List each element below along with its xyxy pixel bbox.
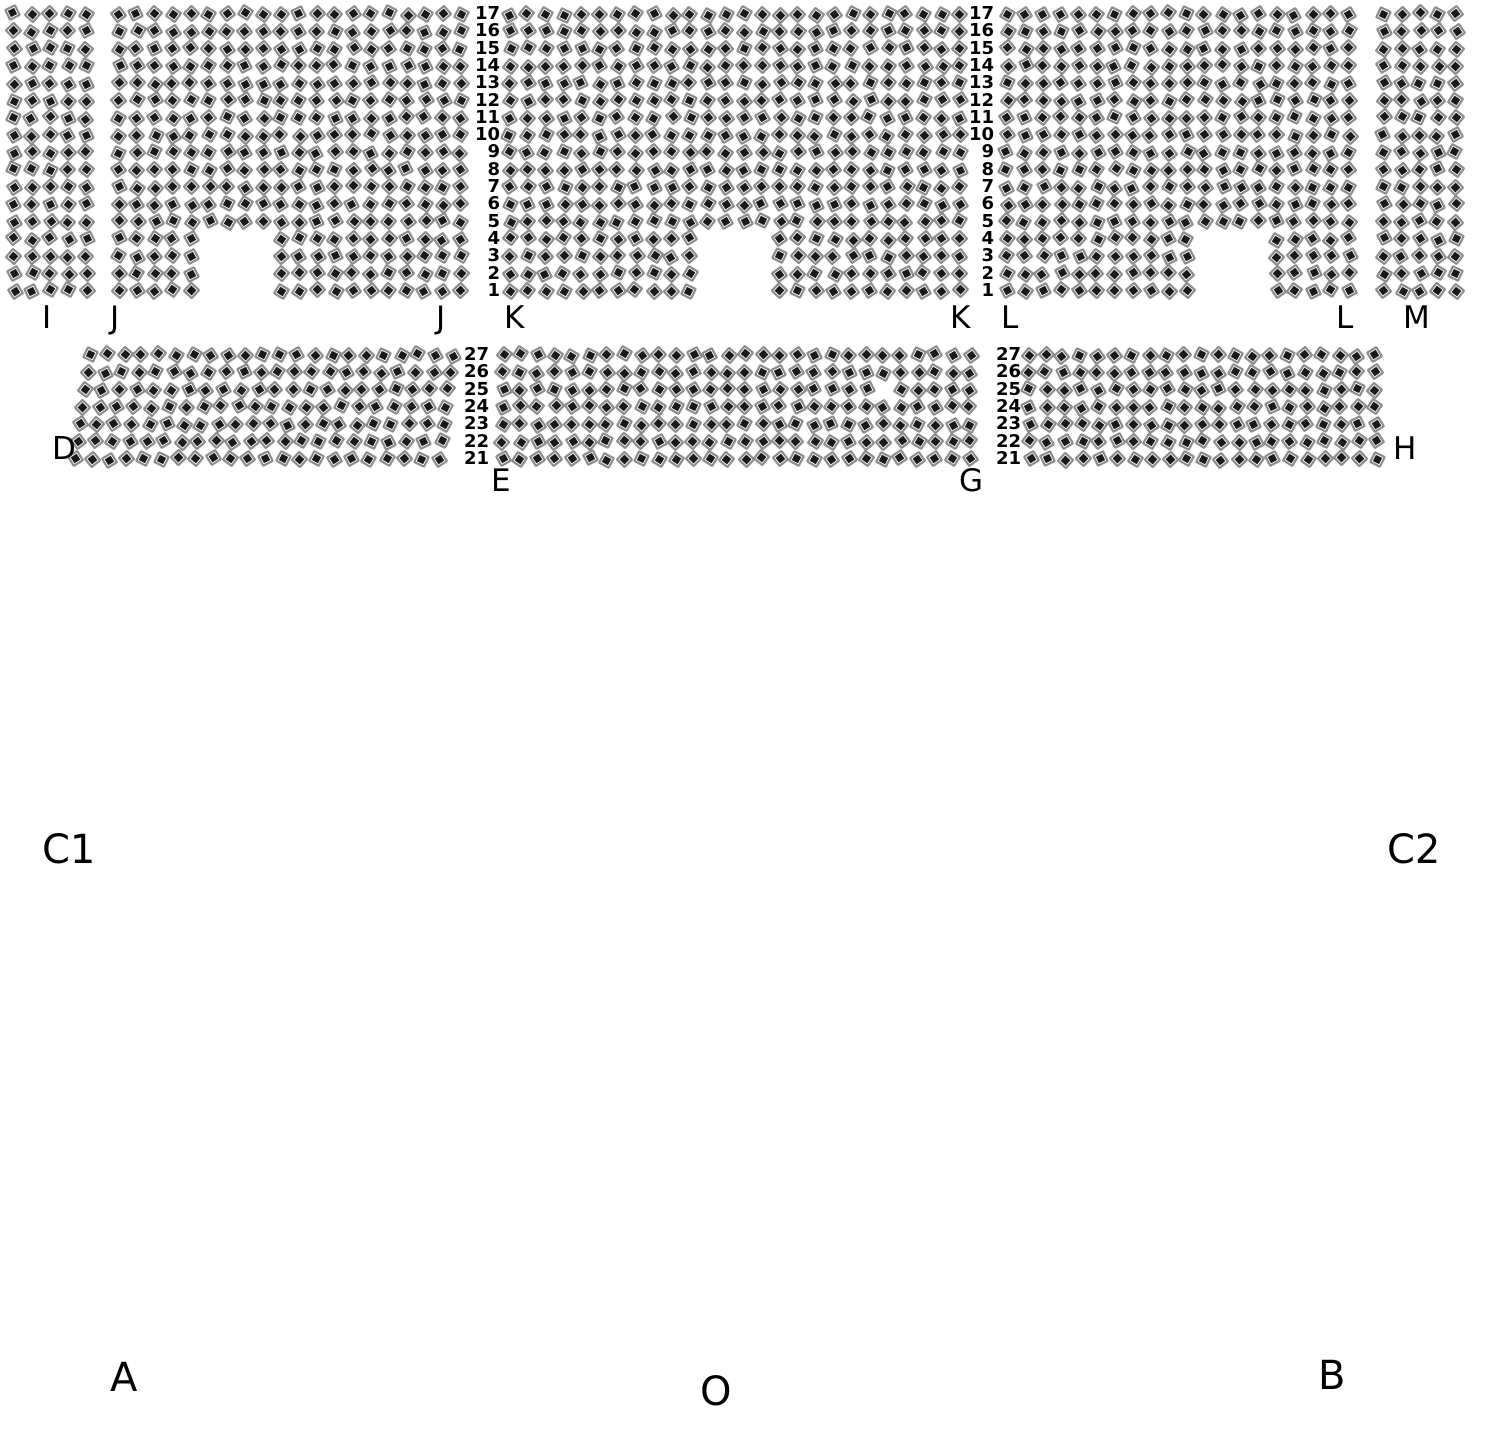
seat[interactable] <box>344 143 362 161</box>
seat[interactable] <box>42 144 60 162</box>
seat[interactable] <box>1053 264 1071 282</box>
seat[interactable] <box>806 416 824 434</box>
seat[interactable] <box>512 433 530 451</box>
seat[interactable] <box>1087 264 1105 282</box>
seat[interactable] <box>86 431 104 449</box>
seat[interactable] <box>591 109 608 126</box>
seat[interactable] <box>646 162 664 180</box>
seat[interactable] <box>651 433 669 451</box>
seat[interactable] <box>536 74 553 91</box>
seat[interactable] <box>361 212 379 230</box>
seat[interactable] <box>519 265 537 283</box>
seat[interactable] <box>614 397 632 415</box>
seat[interactable] <box>893 432 911 450</box>
seat[interactable] <box>1107 398 1125 416</box>
seat[interactable] <box>826 196 843 213</box>
seat[interactable] <box>752 127 770 145</box>
seat[interactable] <box>538 21 556 39</box>
seat[interactable] <box>1376 108 1394 126</box>
seat[interactable] <box>4 4 21 21</box>
seat[interactable] <box>518 212 536 230</box>
seat[interactable] <box>860 126 878 144</box>
seat[interactable] <box>574 246 591 263</box>
seat[interactable] <box>1051 108 1069 126</box>
seat[interactable] <box>626 178 643 195</box>
seat[interactable] <box>129 91 147 109</box>
seat[interactable] <box>201 212 218 229</box>
seat[interactable] <box>1376 195 1394 213</box>
seat[interactable] <box>308 4 326 22</box>
seat[interactable] <box>1142 281 1160 299</box>
seat[interactable] <box>717 6 735 24</box>
seat[interactable] <box>1177 213 1195 231</box>
seat[interactable] <box>60 231 78 249</box>
seat[interactable] <box>790 246 808 264</box>
seat[interactable] <box>111 177 128 194</box>
seat[interactable] <box>1015 90 1033 108</box>
seat[interactable] <box>874 346 892 364</box>
seat[interactable] <box>1053 23 1070 40</box>
seat[interactable] <box>502 161 520 179</box>
seat[interactable] <box>1322 144 1340 162</box>
seat[interactable] <box>1017 22 1034 39</box>
seat[interactable] <box>581 449 599 467</box>
seat[interactable] <box>1071 213 1089 231</box>
seat[interactable] <box>291 450 309 468</box>
seat[interactable] <box>1262 415 1280 433</box>
seat[interactable] <box>805 347 822 364</box>
seat[interactable] <box>314 398 332 416</box>
seat[interactable] <box>235 22 253 40</box>
seat[interactable] <box>1303 73 1321 91</box>
seat[interactable] <box>364 415 382 433</box>
seat[interactable] <box>252 364 270 382</box>
seat[interactable] <box>734 56 752 74</box>
seat[interactable] <box>1350 449 1368 467</box>
seat[interactable] <box>397 160 414 177</box>
seat[interactable] <box>398 229 416 247</box>
seat[interactable] <box>825 91 843 109</box>
seat[interactable] <box>1142 4 1160 22</box>
seat[interactable] <box>41 4 59 22</box>
seat[interactable] <box>862 196 879 213</box>
seat[interactable] <box>236 91 254 109</box>
seat[interactable] <box>255 57 273 75</box>
seat[interactable] <box>362 23 380 41</box>
seat[interactable] <box>1052 178 1070 196</box>
seat[interactable] <box>381 21 399 39</box>
seat[interactable] <box>1087 161 1105 179</box>
seat[interactable] <box>997 211 1015 229</box>
seat[interactable] <box>717 415 735 433</box>
seat[interactable] <box>1428 127 1446 145</box>
seat[interactable] <box>297 398 315 416</box>
seat[interactable] <box>860 108 878 126</box>
seat[interactable] <box>857 345 875 363</box>
seat[interactable] <box>236 363 253 380</box>
seat[interactable] <box>1141 263 1159 281</box>
seat[interactable] <box>1142 22 1160 40</box>
seat[interactable] <box>344 75 362 93</box>
seat[interactable] <box>1178 74 1196 92</box>
seat[interactable] <box>501 57 519 75</box>
seat[interactable] <box>1394 108 1412 126</box>
seat[interactable] <box>1304 126 1322 144</box>
seat[interactable] <box>1285 74 1303 92</box>
seat[interactable] <box>716 21 734 39</box>
seat[interactable] <box>1267 161 1285 179</box>
seat[interactable] <box>6 144 23 161</box>
seat[interactable] <box>684 449 702 467</box>
seat[interactable] <box>915 126 933 144</box>
seat[interactable] <box>145 196 163 214</box>
seat[interactable] <box>78 57 95 74</box>
seat[interactable] <box>78 264 96 282</box>
seat[interactable] <box>1034 230 1052 248</box>
seat[interactable] <box>1052 229 1070 247</box>
seat[interactable] <box>182 4 200 22</box>
seat[interactable] <box>736 415 754 433</box>
seat[interactable] <box>945 433 963 451</box>
seat[interactable] <box>590 196 608 214</box>
seat[interactable] <box>633 347 651 365</box>
seat[interactable] <box>807 40 825 58</box>
seat[interactable] <box>1323 246 1341 264</box>
seat[interactable] <box>327 143 345 161</box>
seat[interactable] <box>325 231 343 249</box>
seat[interactable] <box>520 247 538 265</box>
seat[interactable] <box>1232 125 1250 143</box>
seat[interactable] <box>1210 364 1228 382</box>
seat[interactable] <box>770 363 787 380</box>
seat[interactable] <box>512 345 530 363</box>
seat[interactable] <box>1268 248 1286 266</box>
seat[interactable] <box>1214 144 1232 162</box>
seat[interactable] <box>1323 75 1341 93</box>
seat[interactable] <box>1109 431 1127 449</box>
seat[interactable] <box>807 57 824 74</box>
seat[interactable] <box>564 433 582 451</box>
seat[interactable] <box>735 40 752 57</box>
seat[interactable] <box>1315 432 1333 450</box>
seat[interactable] <box>772 73 790 91</box>
seat[interactable] <box>1341 247 1359 265</box>
seat[interactable] <box>164 281 182 299</box>
seat[interactable] <box>1141 177 1159 195</box>
seat[interactable] <box>1176 398 1194 416</box>
seat[interactable] <box>633 363 651 381</box>
seat[interactable] <box>861 264 879 282</box>
seat[interactable] <box>536 144 554 162</box>
seat[interactable] <box>878 282 896 300</box>
seat[interactable] <box>1299 451 1317 469</box>
seat[interactable] <box>219 143 237 161</box>
seat[interactable] <box>149 345 167 363</box>
seat[interactable] <box>308 281 326 299</box>
seat[interactable] <box>274 450 292 468</box>
seat[interactable] <box>910 432 928 450</box>
seat[interactable] <box>840 380 858 398</box>
seat[interactable] <box>1428 6 1446 24</box>
seat[interactable] <box>501 92 519 110</box>
seat[interactable] <box>700 127 718 145</box>
seat[interactable] <box>1286 230 1304 248</box>
seat[interactable] <box>273 5 291 23</box>
seat[interactable] <box>1279 365 1296 382</box>
seat[interactable] <box>272 40 290 58</box>
seat[interactable] <box>681 40 699 58</box>
seat[interactable] <box>379 247 397 265</box>
seat[interactable] <box>123 415 141 433</box>
seat[interactable] <box>1015 213 1033 231</box>
seat[interactable] <box>597 380 615 398</box>
seat[interactable] <box>698 92 716 110</box>
seat[interactable] <box>681 92 698 109</box>
seat[interactable] <box>344 247 362 265</box>
seat[interactable] <box>345 4 363 22</box>
seat[interactable] <box>1107 39 1125 57</box>
seat[interactable] <box>6 179 24 197</box>
seat[interactable] <box>788 229 806 247</box>
seat[interactable] <box>771 6 789 24</box>
seat[interactable] <box>1142 109 1160 127</box>
seat[interactable] <box>1249 211 1267 229</box>
seat[interactable] <box>844 92 862 110</box>
seat[interactable] <box>826 125 844 143</box>
seat[interactable] <box>326 212 344 230</box>
seat[interactable] <box>1038 398 1056 416</box>
seat[interactable] <box>1123 363 1141 381</box>
seat[interactable] <box>1429 108 1447 126</box>
seat[interactable] <box>1428 179 1446 197</box>
seat[interactable] <box>626 144 644 162</box>
seat[interactable] <box>326 177 344 195</box>
seat[interactable] <box>858 398 876 416</box>
seat[interactable] <box>511 450 529 468</box>
seat[interactable] <box>626 213 644 231</box>
seat[interactable] <box>1020 346 1038 364</box>
seat[interactable] <box>272 247 290 265</box>
seat[interactable] <box>1160 282 1178 300</box>
seat[interactable] <box>771 90 789 108</box>
seat[interactable] <box>1159 196 1177 214</box>
seat[interactable] <box>997 246 1015 264</box>
seat[interactable] <box>1089 75 1107 93</box>
seat[interactable] <box>608 108 626 126</box>
seat[interactable] <box>5 93 22 110</box>
seat[interactable] <box>717 73 735 91</box>
seat[interactable] <box>200 109 218 127</box>
seat[interactable] <box>1142 433 1160 451</box>
seat[interactable] <box>1141 127 1159 145</box>
seat[interactable] <box>789 265 807 283</box>
seat[interactable] <box>1160 4 1178 22</box>
seat[interactable] <box>597 432 614 449</box>
seat[interactable] <box>754 398 772 416</box>
seat[interactable] <box>290 282 308 300</box>
seat[interactable] <box>77 195 95 213</box>
seat[interactable] <box>1036 363 1054 381</box>
seat[interactable] <box>381 73 399 91</box>
seat[interactable] <box>222 450 240 468</box>
seat[interactable] <box>272 265 290 283</box>
seat[interactable] <box>1393 40 1411 58</box>
seat[interactable] <box>664 213 682 231</box>
seat[interactable] <box>878 178 896 196</box>
seat[interactable] <box>1074 414 1092 432</box>
seat[interactable] <box>293 432 311 450</box>
seat[interactable] <box>235 212 253 230</box>
seat[interactable] <box>520 21 538 39</box>
seat[interactable] <box>1304 194 1322 212</box>
seat[interactable] <box>399 126 417 144</box>
seat[interactable] <box>1411 57 1429 75</box>
seat[interactable] <box>417 126 435 144</box>
seat[interactable] <box>1232 21 1250 39</box>
seat[interactable] <box>537 40 555 58</box>
seat[interactable] <box>824 346 841 363</box>
seat[interactable] <box>1177 265 1195 283</box>
seat[interactable] <box>332 397 350 415</box>
seat[interactable] <box>909 450 927 468</box>
seat[interactable] <box>1231 144 1248 161</box>
seat[interactable] <box>110 247 128 265</box>
seat[interactable] <box>520 177 538 195</box>
seat[interactable] <box>182 177 200 195</box>
seat[interactable] <box>916 39 934 57</box>
seat[interactable] <box>1108 380 1126 398</box>
seat[interactable] <box>529 345 547 363</box>
seat[interactable] <box>771 346 789 364</box>
seat[interactable] <box>128 57 146 75</box>
seat[interactable] <box>406 363 424 381</box>
seat[interactable] <box>546 381 563 398</box>
seat[interactable] <box>862 39 880 57</box>
seat[interactable] <box>415 108 433 126</box>
seat[interactable] <box>717 39 735 57</box>
seat[interactable] <box>1447 230 1464 247</box>
seat[interactable] <box>538 178 556 196</box>
seat[interactable] <box>76 40 94 58</box>
seat[interactable] <box>327 23 345 41</box>
seat[interactable] <box>200 125 218 143</box>
seat[interactable] <box>1393 56 1411 74</box>
seat[interactable] <box>1214 21 1232 39</box>
seat[interactable] <box>1243 347 1261 365</box>
seat[interactable] <box>416 6 434 24</box>
seat[interactable] <box>210 415 228 433</box>
seat[interactable] <box>771 161 789 179</box>
seat[interactable] <box>556 143 573 160</box>
seat[interactable] <box>145 143 162 160</box>
seat[interactable] <box>5 265 23 283</box>
seat[interactable] <box>1376 23 1394 41</box>
seat[interactable] <box>1269 91 1286 108</box>
seat[interactable] <box>183 213 201 231</box>
seat[interactable] <box>254 194 272 212</box>
seat[interactable] <box>272 196 290 214</box>
seat[interactable] <box>1088 5 1106 23</box>
seat[interactable] <box>808 196 825 213</box>
seat[interactable] <box>998 5 1016 23</box>
seat[interactable] <box>735 92 753 110</box>
seat[interactable] <box>650 450 668 468</box>
seat[interactable] <box>649 345 667 363</box>
seat[interactable] <box>495 415 513 433</box>
seat[interactable] <box>1447 126 1465 144</box>
seat[interactable] <box>1034 126 1052 144</box>
seat[interactable] <box>197 381 215 399</box>
seat[interactable] <box>842 40 860 58</box>
seat[interactable] <box>1125 281 1143 299</box>
seat[interactable] <box>76 380 94 398</box>
seat[interactable] <box>874 364 891 381</box>
seat[interactable] <box>308 196 326 214</box>
seat[interactable] <box>664 179 682 197</box>
seat[interactable] <box>1176 364 1194 382</box>
seat[interactable] <box>145 160 163 178</box>
seat[interactable] <box>110 73 128 91</box>
seat[interactable] <box>804 364 822 382</box>
seat[interactable] <box>1034 57 1052 75</box>
seat[interactable] <box>824 380 842 398</box>
seat[interactable] <box>897 194 915 212</box>
seat[interactable] <box>628 57 646 75</box>
seat[interactable] <box>1193 398 1211 416</box>
seat[interactable] <box>1071 144 1089 162</box>
seat[interactable] <box>308 127 326 145</box>
seat[interactable] <box>98 345 116 363</box>
seat[interactable] <box>183 91 201 109</box>
seat[interactable] <box>163 382 181 400</box>
seat[interactable] <box>839 398 857 416</box>
seat[interactable] <box>545 362 563 380</box>
seat[interactable] <box>1020 431 1038 449</box>
seat[interactable] <box>563 450 581 468</box>
seat[interactable] <box>1228 397 1246 415</box>
seat[interactable] <box>130 363 148 381</box>
seat[interactable] <box>1286 264 1304 282</box>
seat[interactable] <box>1055 363 1072 380</box>
seat[interactable] <box>41 177 59 195</box>
seat[interactable] <box>1033 265 1051 283</box>
seat[interactable] <box>344 57 361 74</box>
seat[interactable] <box>1286 144 1304 162</box>
seat[interactable] <box>916 57 934 75</box>
seat[interactable] <box>76 143 94 161</box>
seat[interactable] <box>735 363 753 381</box>
seat[interactable] <box>998 74 1015 91</box>
seat[interactable] <box>680 229 698 247</box>
seat[interactable] <box>236 144 254 162</box>
seat[interactable] <box>362 282 380 300</box>
seat[interactable] <box>826 231 844 249</box>
seat[interactable] <box>1124 195 1142 213</box>
seat[interactable] <box>290 162 308 180</box>
seat[interactable] <box>272 179 290 197</box>
seat[interactable] <box>839 432 857 450</box>
seat[interactable] <box>1322 56 1340 74</box>
seat[interactable] <box>1268 74 1286 92</box>
seat[interactable] <box>235 110 253 128</box>
seat[interactable] <box>501 178 519 196</box>
seat[interactable] <box>1375 160 1393 178</box>
seat[interactable] <box>999 58 1017 76</box>
seat[interactable] <box>308 212 325 229</box>
seat[interactable] <box>1315 399 1333 417</box>
seat[interactable] <box>117 450 135 468</box>
seat[interactable] <box>163 92 181 110</box>
